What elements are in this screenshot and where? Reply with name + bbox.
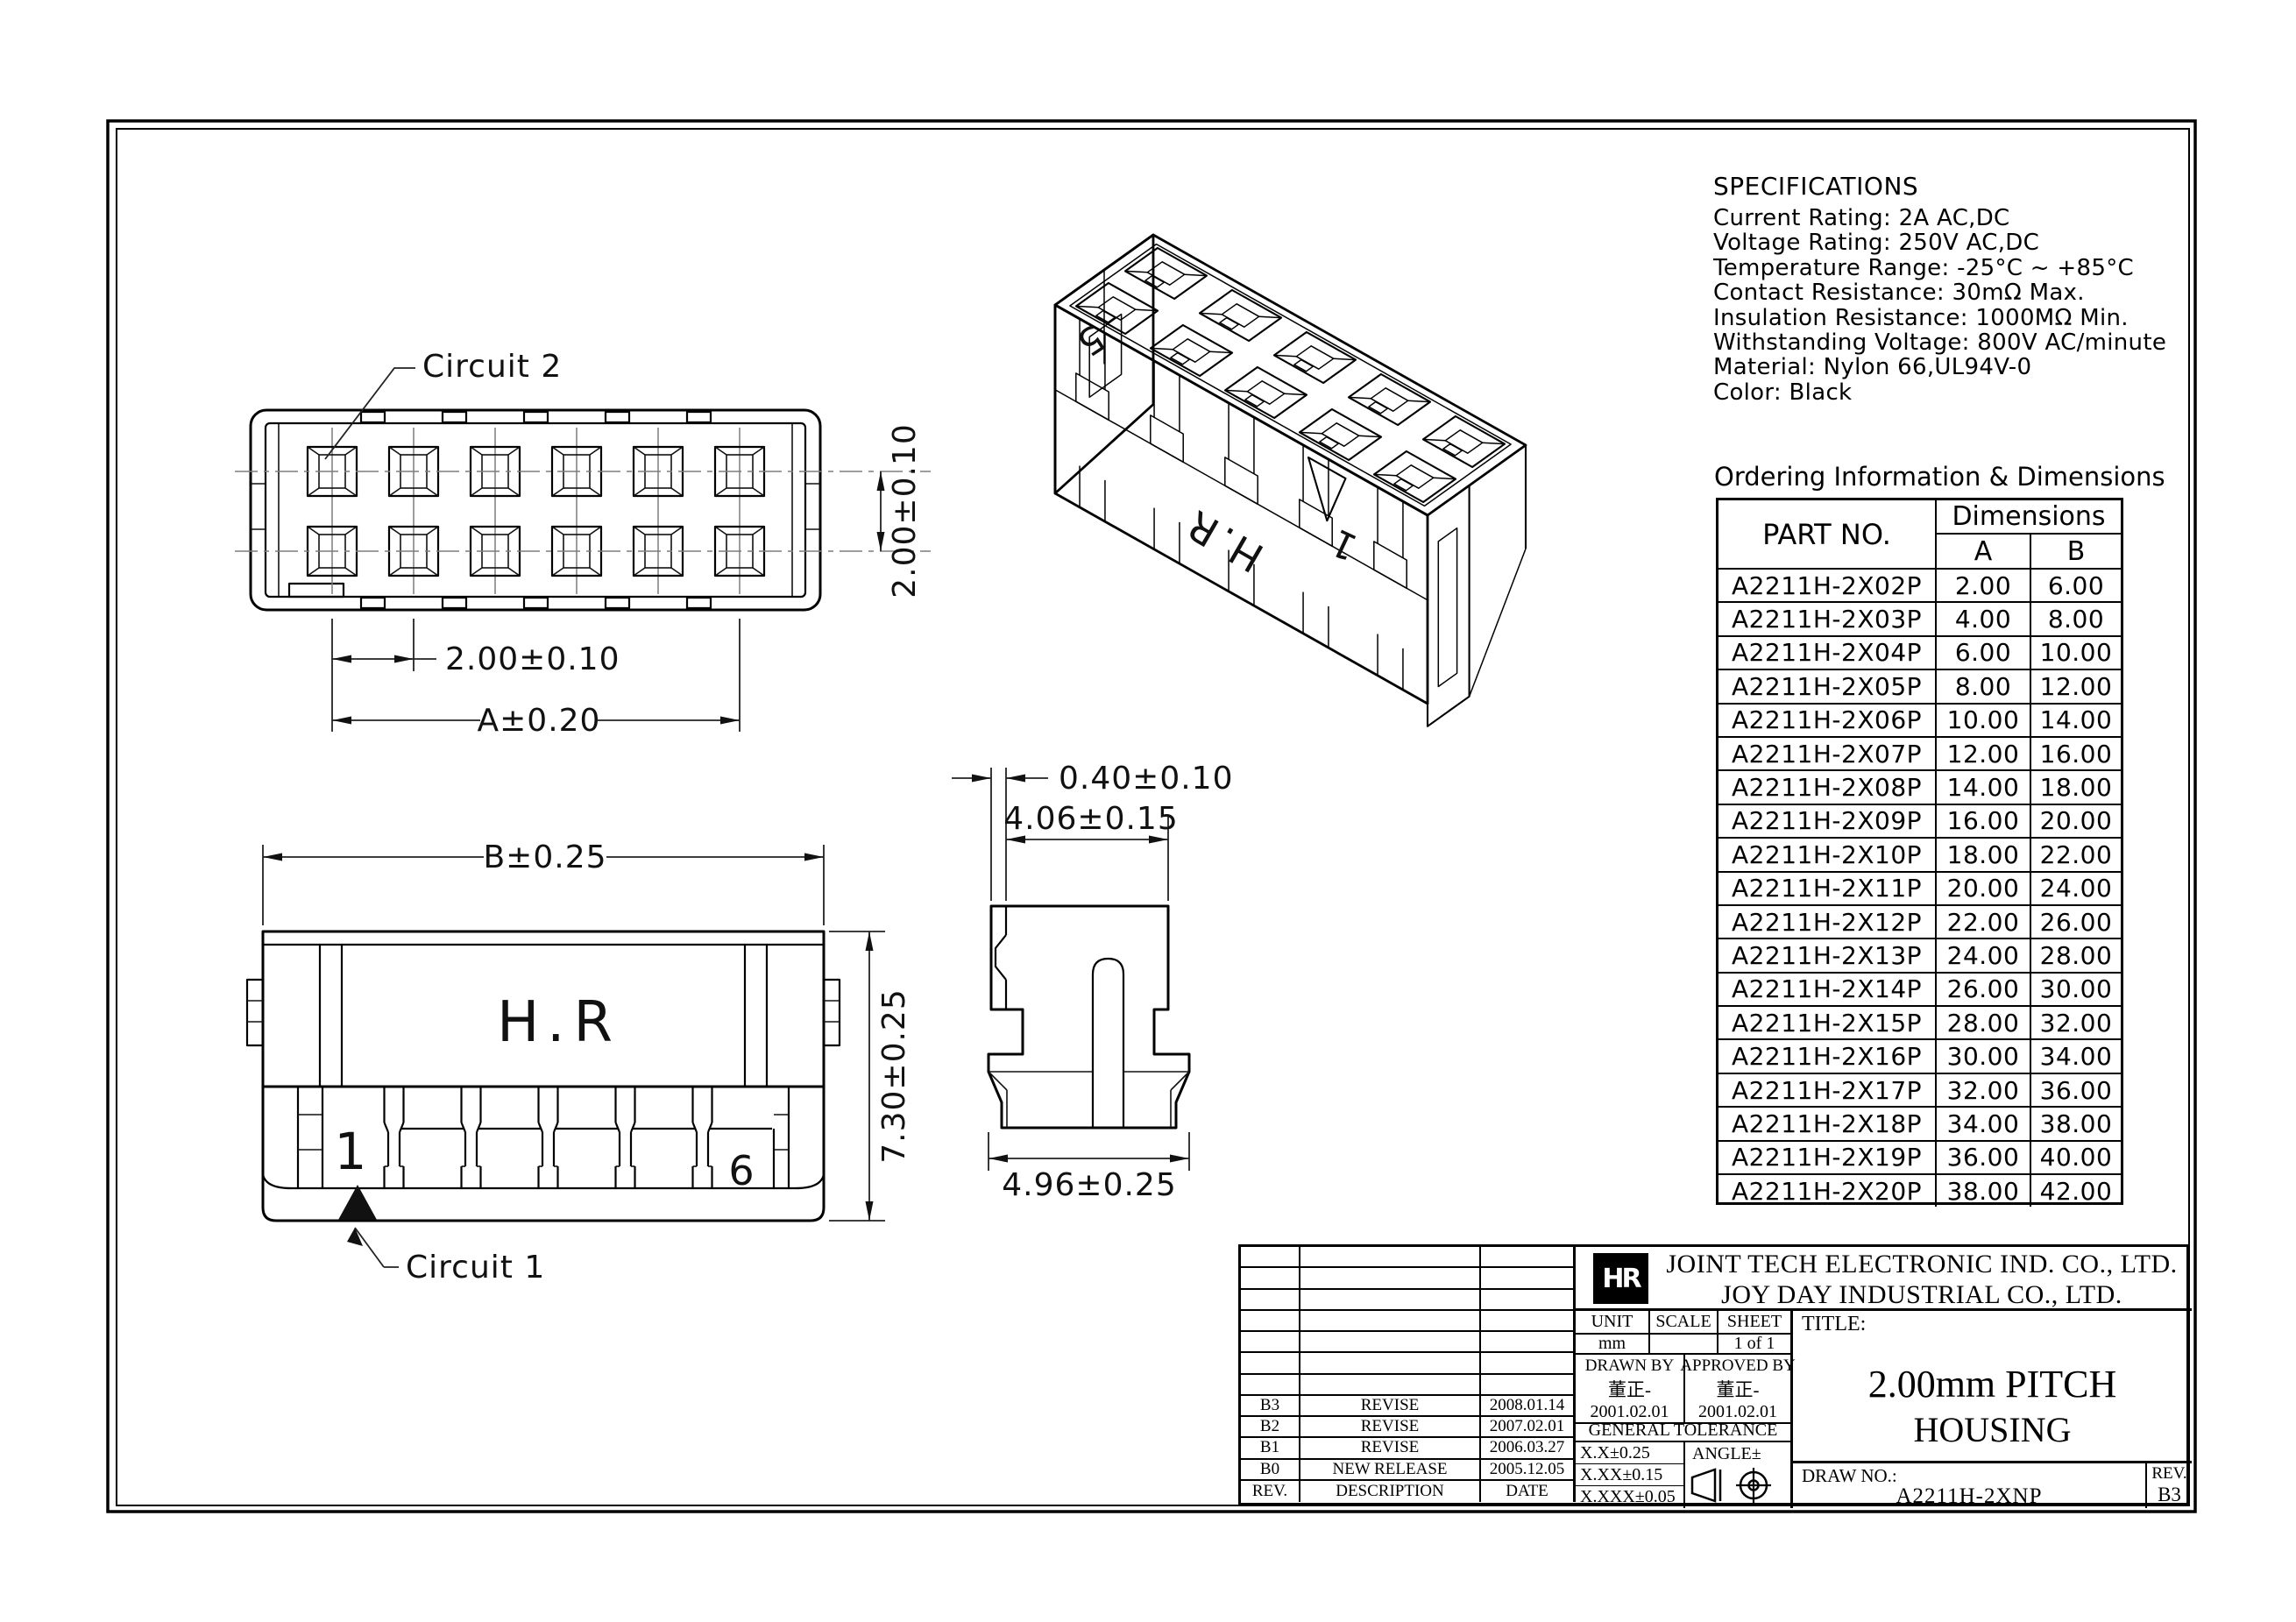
spec-line: Color: Black — [1713, 380, 2191, 405]
draw-no-cell: DRAW NO.: A2211H-2XNP — [1790, 1463, 2145, 1508]
circuit1-number: 1 — [335, 1122, 367, 1181]
drawing-title-line1: 2.00mm PITCH — [1793, 1362, 2192, 1406]
revision-cell — [1300, 1247, 1481, 1268]
spec-line: Contact Resistance: 30mΩ Max. — [1713, 280, 2191, 305]
company-band: HR JOINT TECH ELECTRONIC IND. CO., LTD. … — [1576, 1247, 2192, 1311]
spec-line: Temperature Range: -25°C ~ +85°C — [1713, 256, 2191, 280]
polarity-triangle — [338, 1185, 377, 1220]
title-block: B3REVISE2008.01.14B2REVISE2007.02.01B1RE… — [1238, 1244, 2189, 1505]
revision-cell: REV. — [1241, 1481, 1300, 1502]
dim-overall-a: A±0.20 — [478, 703, 601, 739]
revision-cell — [1300, 1311, 1481, 1332]
circuit1-label: Circuit 1 — [406, 1250, 545, 1286]
ordering-row: A2211H-2X10P18.0022.00 — [1718, 837, 2121, 870]
revision-cell — [1481, 1332, 1573, 1353]
revision-cell — [1300, 1268, 1481, 1289]
ordering-row: A2211H-2X14P26.0030.00 — [1718, 972, 2121, 1005]
approved-by-signature: 董正- — [1717, 1376, 1760, 1402]
revision-cell: 2008.01.14 — [1481, 1396, 1573, 1417]
front-view: H.R 1 6 Circuit 1 B±0.25 7.30±0.25 — [247, 839, 912, 1286]
ordering-row: A2211H-2X20P38.0042.00 — [1718, 1173, 2121, 1207]
revision-table: B3REVISE2008.01.14B2REVISE2007.02.01B1RE… — [1241, 1247, 1576, 1502]
ordering-row: A2211H-2X12P22.0026.00 — [1718, 904, 2121, 938]
col-header-b: B — [2031, 535, 2121, 568]
top-view: Circuit 2 2.00±0.10 A±0.20 2.00±0.10 — [235, 349, 931, 739]
drawn-by-signature: 董正- — [1608, 1376, 1651, 1402]
dim-pitch: 2.00±0.10 — [445, 641, 620, 677]
rev-value: B3 — [2158, 1484, 2181, 1506]
revision-cell — [1300, 1353, 1481, 1374]
dim-wall: 0.40±0.10 — [1059, 761, 1233, 797]
revision-cell: NEW RELEASE — [1300, 1460, 1481, 1481]
unit-scale-sheet: UNIT SCALE SHEET mm 1 of 1 — [1576, 1311, 1790, 1355]
ordering-row: A2211H-2X03P4.008.00 — [1718, 601, 2121, 634]
revision-cell: REVISE — [1300, 1396, 1481, 1417]
tolerance-1: X.X±0.25 — [1576, 1442, 1683, 1464]
revision-cell: 2006.03.27 — [1481, 1438, 1573, 1459]
tolerance-3: X.XXX±0.05 — [1576, 1486, 1683, 1508]
revision-cell — [1241, 1375, 1300, 1396]
spec-line: Insulation Resistance: 1000MΩ Min. — [1713, 306, 2191, 330]
drawn-by-label: DRAWN BY — [1585, 1356, 1674, 1376]
ordering-title: Ordering Information & Dimensions — [1714, 462, 2192, 492]
scale-value — [1650, 1335, 1718, 1355]
rev-label: REV. — [2151, 1464, 2186, 1484]
drawing-sheet: Circuit 2 2.00±0.10 A±0.20 2.00±0.10 — [0, 0, 2296, 1622]
draw-no-value: A2211H-2XNP — [1793, 1484, 2145, 1509]
ordering-row: A2211H-2X05P8.0012.00 — [1718, 669, 2121, 702]
revision-cell: 2007.02.01 — [1481, 1417, 1573, 1438]
revision-cell: B0 — [1241, 1460, 1300, 1481]
ordering-row: A2211H-2X18P34.0038.00 — [1718, 1106, 2121, 1139]
ordering-row: A2211H-2X09P16.0020.00 — [1718, 804, 2121, 837]
ordering-row: A2211H-2X13P24.0028.00 — [1718, 938, 2121, 971]
rev-cell: REV. B3 — [2145, 1463, 2192, 1508]
revision-cell — [1241, 1247, 1300, 1268]
revision-cell: DESCRIPTION — [1300, 1481, 1481, 1502]
revision-cell: B3 — [1241, 1396, 1300, 1417]
spec-line: Material: Nylon 66,UL94V-0 — [1713, 355, 2191, 379]
general-tolerance-title: GENERAL TOLERANCE — [1576, 1420, 1790, 1442]
ordering-row: A2211H-2X16P30.0034.00 — [1718, 1038, 2121, 1072]
title-label: TITLE: — [1802, 1313, 1866, 1336]
ordering-row: A2211H-2X07P12.0016.00 — [1718, 736, 2121, 769]
circuit6-number: 6 — [728, 1147, 754, 1194]
revision-cell: REVISE — [1300, 1417, 1481, 1438]
sheet-value: 1 of 1 — [1718, 1335, 1790, 1355]
angle-label: ANGLE± — [1685, 1442, 1790, 1464]
revision-cell: B1 — [1241, 1438, 1300, 1459]
dim-row-pitch: 2.00±0.10 — [887, 423, 923, 598]
revision-cell — [1241, 1353, 1300, 1374]
circuit2-label: Circuit 2 — [422, 349, 562, 385]
projection-symbol — [1685, 1464, 1789, 1506]
drawing-title-line2: HOUSING — [1793, 1409, 2192, 1450]
tolerance-2: X.XX±0.15 — [1576, 1464, 1683, 1486]
dim-base: 4.96±0.25 — [1002, 1167, 1176, 1203]
revision-cell: DATE — [1481, 1481, 1573, 1502]
specifications-title: SPECIFICATIONS — [1713, 172, 2191, 201]
brand-mark: H.R — [497, 990, 621, 1055]
spec-line: Voltage Rating: 250V AC,DC — [1713, 230, 2191, 255]
col-header-part: PART NO. — [1718, 500, 1937, 568]
ordering-row: A2211H-2X15P28.0032.00 — [1718, 1005, 2121, 1038]
revision-cell — [1481, 1268, 1573, 1289]
dim-upper: 4.06±0.15 — [1003, 801, 1178, 837]
revision-cell — [1241, 1290, 1300, 1311]
revision-cell — [1300, 1332, 1481, 1353]
revision-cell — [1241, 1268, 1300, 1289]
revision-cell: REVISE — [1300, 1438, 1481, 1459]
revision-cell — [1241, 1332, 1300, 1353]
ordering-row: A2211H-2X17P32.0036.00 — [1718, 1073, 2121, 1106]
revision-cell — [1300, 1290, 1481, 1311]
dim-width-b: B±0.25 — [483, 839, 606, 875]
spec-line: Current Rating: 2A AC,DC — [1713, 206, 2191, 230]
revision-cell — [1241, 1311, 1300, 1332]
approved-by-label: APPROVED BY — [1680, 1356, 1795, 1376]
spec-line: Withstanding Voltage: 800V AC/minute — [1713, 330, 2191, 355]
ordering-row: A2211H-2X11P20.0024.00 — [1718, 871, 2121, 904]
iso-view: 5 1 H.R — [1055, 235, 1526, 726]
unit-value: mm — [1576, 1335, 1650, 1355]
side-view: 0.40±0.10 4.06±0.15 4.96±0.25 — [952, 761, 1233, 1203]
scale-label: SCALE — [1650, 1311, 1718, 1335]
company-name-1: JOINT TECH ELECTRONIC IND. CO., LTD. — [1659, 1250, 2185, 1279]
ordering-row: A2211H-2X08P14.0018.00 — [1718, 769, 2121, 803]
unit-label: UNIT — [1576, 1311, 1650, 1335]
company-logo: HR — [1593, 1253, 1648, 1304]
ordering-row: A2211H-2X19P36.0040.00 — [1718, 1140, 2121, 1173]
drawn-approved: DRAWN BY 董正- 2001.02.01 APPROVED BY 董正- … — [1576, 1355, 1790, 1420]
dim-height: 7.30±0.25 — [876, 988, 912, 1163]
tolerance-values: X.X±0.25 X.XX±0.15 X.XXX±0.05 — [1576, 1442, 1685, 1508]
revision-cell — [1481, 1290, 1573, 1311]
ordering-table: PART NO. Dimensions A B A2211H-2X02P2.00… — [1716, 498, 2123, 1205]
revision-cell — [1300, 1375, 1481, 1396]
revision-cell — [1481, 1375, 1573, 1396]
revision-cell — [1481, 1311, 1573, 1332]
revision-cell — [1481, 1247, 1573, 1268]
angle-cell: ANGLE± — [1685, 1442, 1790, 1508]
col-header-a: A — [1937, 535, 2031, 568]
ordering-row: A2211H-2X04P6.0010.00 — [1718, 635, 2121, 669]
revision-cell: 2005.12.05 — [1481, 1460, 1573, 1481]
revision-cell: B2 — [1241, 1417, 1300, 1438]
revision-cell — [1481, 1353, 1573, 1374]
sheet-label: SHEET — [1718, 1311, 1790, 1335]
col-header-dimensions: Dimensions — [1937, 500, 2121, 535]
ordering-row: A2211H-2X02P2.006.00 — [1718, 568, 2121, 601]
title-area: TITLE: 2.00mm PITCH HOUSING — [1790, 1311, 2192, 1463]
specifications: SPECIFICATIONS Current Rating: 2A AC,DCV… — [1713, 172, 2191, 405]
ordering-row: A2211H-2X06P10.0014.00 — [1718, 703, 2121, 736]
company-name-2: JOY DAY INDUSTRIAL CO., LTD. — [1659, 1280, 2185, 1310]
ordering-rows: A2211H-2X02P2.006.00A2211H-2X03P4.008.00… — [1718, 568, 2121, 1207]
